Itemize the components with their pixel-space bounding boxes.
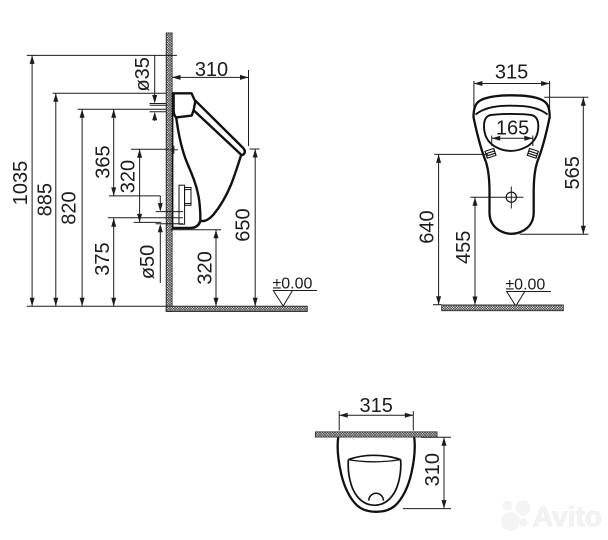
svg-text:455: 455 — [453, 231, 475, 264]
svg-text:640: 640 — [417, 210, 439, 243]
svg-text:885: 885 — [34, 183, 56, 216]
svg-text:ø35: ø35 — [132, 57, 154, 91]
svg-text:1035: 1035 — [10, 161, 32, 206]
svg-text:±0.00: ±0.00 — [273, 276, 313, 293]
svg-text:365: 365 — [92, 145, 114, 178]
svg-text:320: 320 — [117, 160, 139, 193]
svg-text:165: 165 — [496, 118, 529, 140]
svg-text:375: 375 — [92, 242, 114, 275]
svg-text:565: 565 — [562, 156, 584, 189]
svg-text:315: 315 — [360, 395, 393, 417]
svg-text:650: 650 — [233, 208, 255, 241]
svg-text:310: 310 — [195, 59, 228, 81]
svg-text:ø50: ø50 — [137, 245, 159, 279]
svg-text:Avito: Avito — [533, 501, 602, 532]
svg-text:820: 820 — [58, 191, 80, 224]
svg-text:±0.00: ±0.00 — [505, 277, 545, 294]
svg-text:320: 320 — [194, 251, 216, 284]
svg-text:310: 310 — [422, 453, 444, 486]
svg-text:315: 315 — [495, 62, 528, 84]
